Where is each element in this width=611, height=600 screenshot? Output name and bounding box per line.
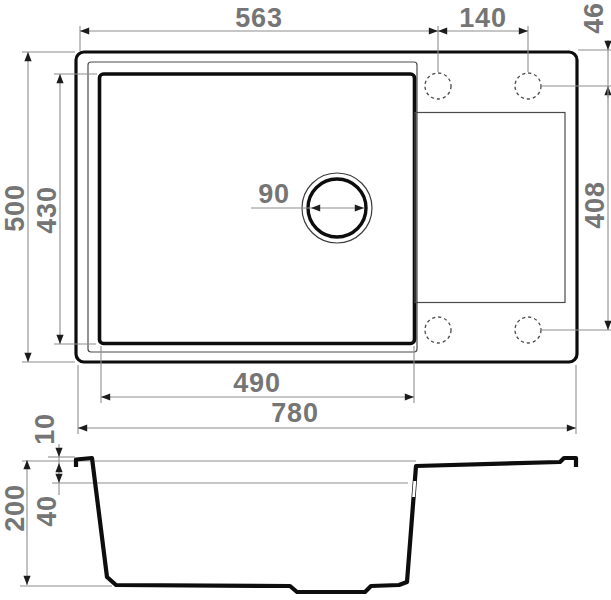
dim-label-490: 490 — [233, 368, 280, 398]
dim-label-500: 500 — [0, 184, 30, 231]
dim-label-40: 40 — [32, 495, 62, 527]
dim-label-430: 430 — [32, 186, 62, 233]
dim-label-10: 10 — [30, 413, 60, 445]
faucet-hole-bottom-right — [515, 317, 541, 343]
top-view-dimensions: 563 140 46 408 500 430 90 490 780 — [0, 2, 611, 434]
dim-label-780: 780 — [271, 398, 318, 428]
faucet-hole-top-left — [425, 73, 451, 99]
faucet-hole-top-right — [515, 73, 541, 99]
section-profile — [76, 458, 576, 592]
sink-outer-edge — [76, 52, 577, 362]
top-view — [76, 52, 577, 362]
dim-label-408: 408 — [580, 181, 610, 228]
section-view — [20, 457, 576, 592]
faucet-hole-bottom-left — [425, 317, 451, 343]
wall-break-mark — [414, 481, 415, 497]
dim-label-200: 200 — [0, 484, 30, 531]
drawing-canvas: 563 140 46 408 500 430 90 490 780 10 40 … — [0, 0, 611, 600]
section-dimensions: 10 40 200 — [0, 413, 62, 585]
drainboard-outline — [415, 113, 565, 303]
dim-label-563: 563 — [235, 3, 282, 33]
dim-label-90: 90 — [258, 179, 290, 209]
dim-label-46: 46 — [579, 2, 609, 34]
dim-label-140: 140 — [459, 3, 506, 33]
sink-technical-drawing: 563 140 46 408 500 430 90 490 780 10 40 … — [0, 0, 611, 600]
